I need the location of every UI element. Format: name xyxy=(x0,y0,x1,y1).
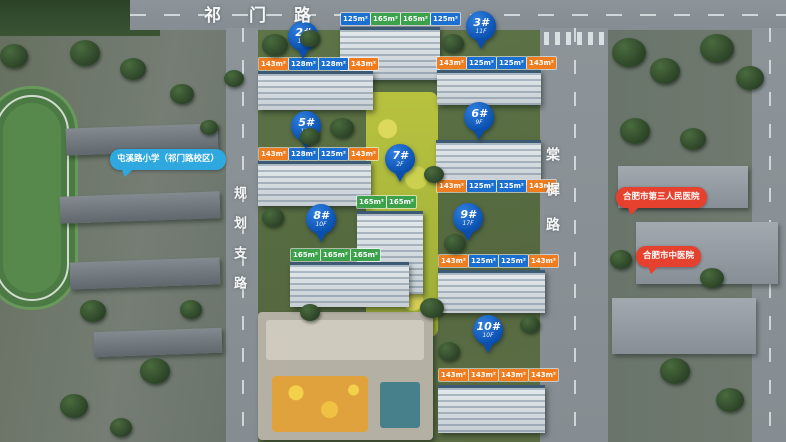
tree xyxy=(0,44,28,68)
unit-labels-building-5: 143m² 128m² 125m² 143m² xyxy=(259,148,378,160)
tower-3 xyxy=(437,70,541,105)
tree xyxy=(180,300,202,319)
school-building xyxy=(70,257,221,289)
pin-floors: 10F xyxy=(482,332,493,339)
tree xyxy=(680,128,706,150)
tree xyxy=(80,300,106,322)
unit-labels-building-10: 143m² 143m² 143m² 143m² xyxy=(439,369,558,381)
unit-chip: 125m² xyxy=(469,255,498,267)
unit-chip: 165m² xyxy=(401,13,430,25)
tree xyxy=(520,316,540,333)
tree xyxy=(442,34,464,53)
unit-chip: 143m² xyxy=(349,148,378,160)
tree xyxy=(438,342,460,361)
tree xyxy=(262,208,284,227)
unit-chip: 125m² xyxy=(497,180,526,192)
unit-chip: 125m² xyxy=(467,180,496,192)
tree xyxy=(300,30,320,47)
tree xyxy=(444,234,466,253)
pin-icon: 3# 11F xyxy=(466,11,496,41)
unit-labels-building-1: 125m² 165m² 165m² 125m² xyxy=(341,13,460,25)
pin-icon: 6# 9F xyxy=(464,102,494,132)
sports-field xyxy=(3,103,61,293)
unit-labels-building-7: 165m² 165m² xyxy=(357,196,416,208)
tree xyxy=(612,38,646,67)
pin-floors: 10F xyxy=(315,221,326,228)
pin-tip xyxy=(473,129,485,140)
school-building xyxy=(60,191,221,224)
school-building xyxy=(94,328,223,357)
unit-chip: 143m² xyxy=(529,255,558,267)
building-pin-7: 7# 2F xyxy=(383,144,417,182)
tower-5 xyxy=(258,161,371,206)
unit-chip: 125m² xyxy=(431,13,460,25)
unit-chip: 143m² xyxy=(259,58,288,70)
road-label-north: 祁门路 xyxy=(204,1,339,26)
pin-tip xyxy=(482,342,494,353)
pin-icon: 7# 2F xyxy=(385,144,415,174)
kindergarten xyxy=(258,312,433,440)
unit-chip: 143m² xyxy=(439,255,468,267)
kindergarten-wing xyxy=(266,320,424,360)
pin-number: 5# xyxy=(298,117,313,128)
pin-number: 8# xyxy=(313,210,328,221)
unit-chip: 143m² xyxy=(469,369,498,381)
unit-chip: 128m² xyxy=(289,58,318,70)
unit-chip: 143m² xyxy=(527,57,556,69)
unit-chip: 143m² xyxy=(437,180,466,192)
tower-8 xyxy=(290,262,409,307)
tree xyxy=(110,418,132,437)
tree xyxy=(620,118,650,144)
unit-chip: 165m² xyxy=(291,249,320,261)
unit-chip: 165m² xyxy=(321,249,350,261)
tree xyxy=(650,58,680,84)
tree xyxy=(224,70,244,87)
kindergarten-playground xyxy=(272,376,368,432)
tree xyxy=(70,40,100,66)
building-pin-3: 3# 11F xyxy=(464,11,498,49)
hospital-building xyxy=(612,298,756,354)
tower-6 xyxy=(436,140,541,185)
pin-floors: 17F xyxy=(462,220,473,227)
tree xyxy=(736,66,764,90)
unit-chip: 165m² xyxy=(387,196,416,208)
lane-dash xyxy=(574,28,576,442)
poi-bubble-hospital-tcm: 合肥市中医院 xyxy=(636,246,701,267)
unit-chip: 125m² xyxy=(467,57,496,69)
unit-labels-building-2: 143m² 128m² 128m² 143m² xyxy=(259,58,378,70)
unit-chip: 125m² xyxy=(341,13,370,25)
pin-icon: 9# 17F xyxy=(453,203,483,233)
pin-number: 9# xyxy=(460,209,475,220)
unit-chip: 128m² xyxy=(289,148,318,160)
pin-tip xyxy=(297,48,309,59)
unit-chip: 125m² xyxy=(499,255,528,267)
tree xyxy=(716,388,744,412)
tree xyxy=(660,358,690,384)
kindergarten-pool xyxy=(380,382,420,428)
pin-floors: 11F xyxy=(475,28,486,35)
tree xyxy=(300,128,320,145)
pin-number: 10# xyxy=(477,321,500,332)
unit-chip: 143m² xyxy=(259,148,288,160)
poi-bubble-school: 屯溪路小学（祁门路校区） xyxy=(110,149,226,170)
pin-tip xyxy=(315,231,327,242)
road-label-east: 棠樨路 xyxy=(542,147,562,252)
unit-chip: 125m² xyxy=(319,148,348,160)
unit-labels-building-3: 143m² 125m² 125m² 143m² xyxy=(437,57,556,69)
pin-tip xyxy=(394,171,406,182)
tower-2 xyxy=(258,71,373,110)
tree xyxy=(60,394,88,418)
tree xyxy=(610,250,632,269)
pin-number: 7# xyxy=(392,150,407,161)
building-pin-6: 6# 9F xyxy=(462,102,496,140)
unit-chip: 143m² xyxy=(349,58,378,70)
unit-chip: 143m² xyxy=(529,369,558,381)
site-plan-rendering: 125m² 165m² 165m² 125m² 143m² 128m² 128m… xyxy=(0,0,786,442)
pin-number: 3# xyxy=(473,17,488,28)
pin-tip xyxy=(475,38,487,49)
unit-chip: 165m² xyxy=(357,196,386,208)
unit-labels-building-8: 165m² 165m² 165m² xyxy=(291,249,380,261)
tree xyxy=(262,34,288,56)
unit-chip: 165m² xyxy=(351,249,380,261)
unit-chip: 165m² xyxy=(371,13,400,25)
tree xyxy=(140,358,170,384)
tower-10 xyxy=(438,385,545,433)
unit-chip: 143m² xyxy=(499,369,528,381)
unit-chip: 125m² xyxy=(497,57,526,69)
tower-9 xyxy=(438,270,545,313)
pin-number: 6# xyxy=(471,108,486,119)
road-label-west: 规划支路 xyxy=(229,186,248,306)
pin-icon: 8# 10F xyxy=(306,204,336,234)
crosswalk xyxy=(544,32,604,45)
unit-chip: 143m² xyxy=(437,57,466,69)
tree xyxy=(300,304,320,321)
unit-labels-building-6: 143m² 125m² 125m² 143m² xyxy=(437,180,556,192)
unit-chip: 128m² xyxy=(319,58,348,70)
pin-floors: 2F xyxy=(396,161,403,168)
tree xyxy=(700,34,734,63)
tree xyxy=(424,166,444,183)
building-pin-8: 8# 10F xyxy=(304,204,338,242)
poi-bubble-hospital-third-peoples: 合肥市第三人民医院 xyxy=(616,187,707,208)
unit-chip: 143m² xyxy=(439,369,468,381)
tree xyxy=(120,58,146,80)
pin-icon: 10# 10F xyxy=(473,315,503,345)
building-pin-10: 10# 10F xyxy=(471,315,505,353)
pin-floors: 9F xyxy=(475,119,482,126)
unit-labels-building-9: 143m² 125m² 125m² 143m² xyxy=(439,255,558,267)
